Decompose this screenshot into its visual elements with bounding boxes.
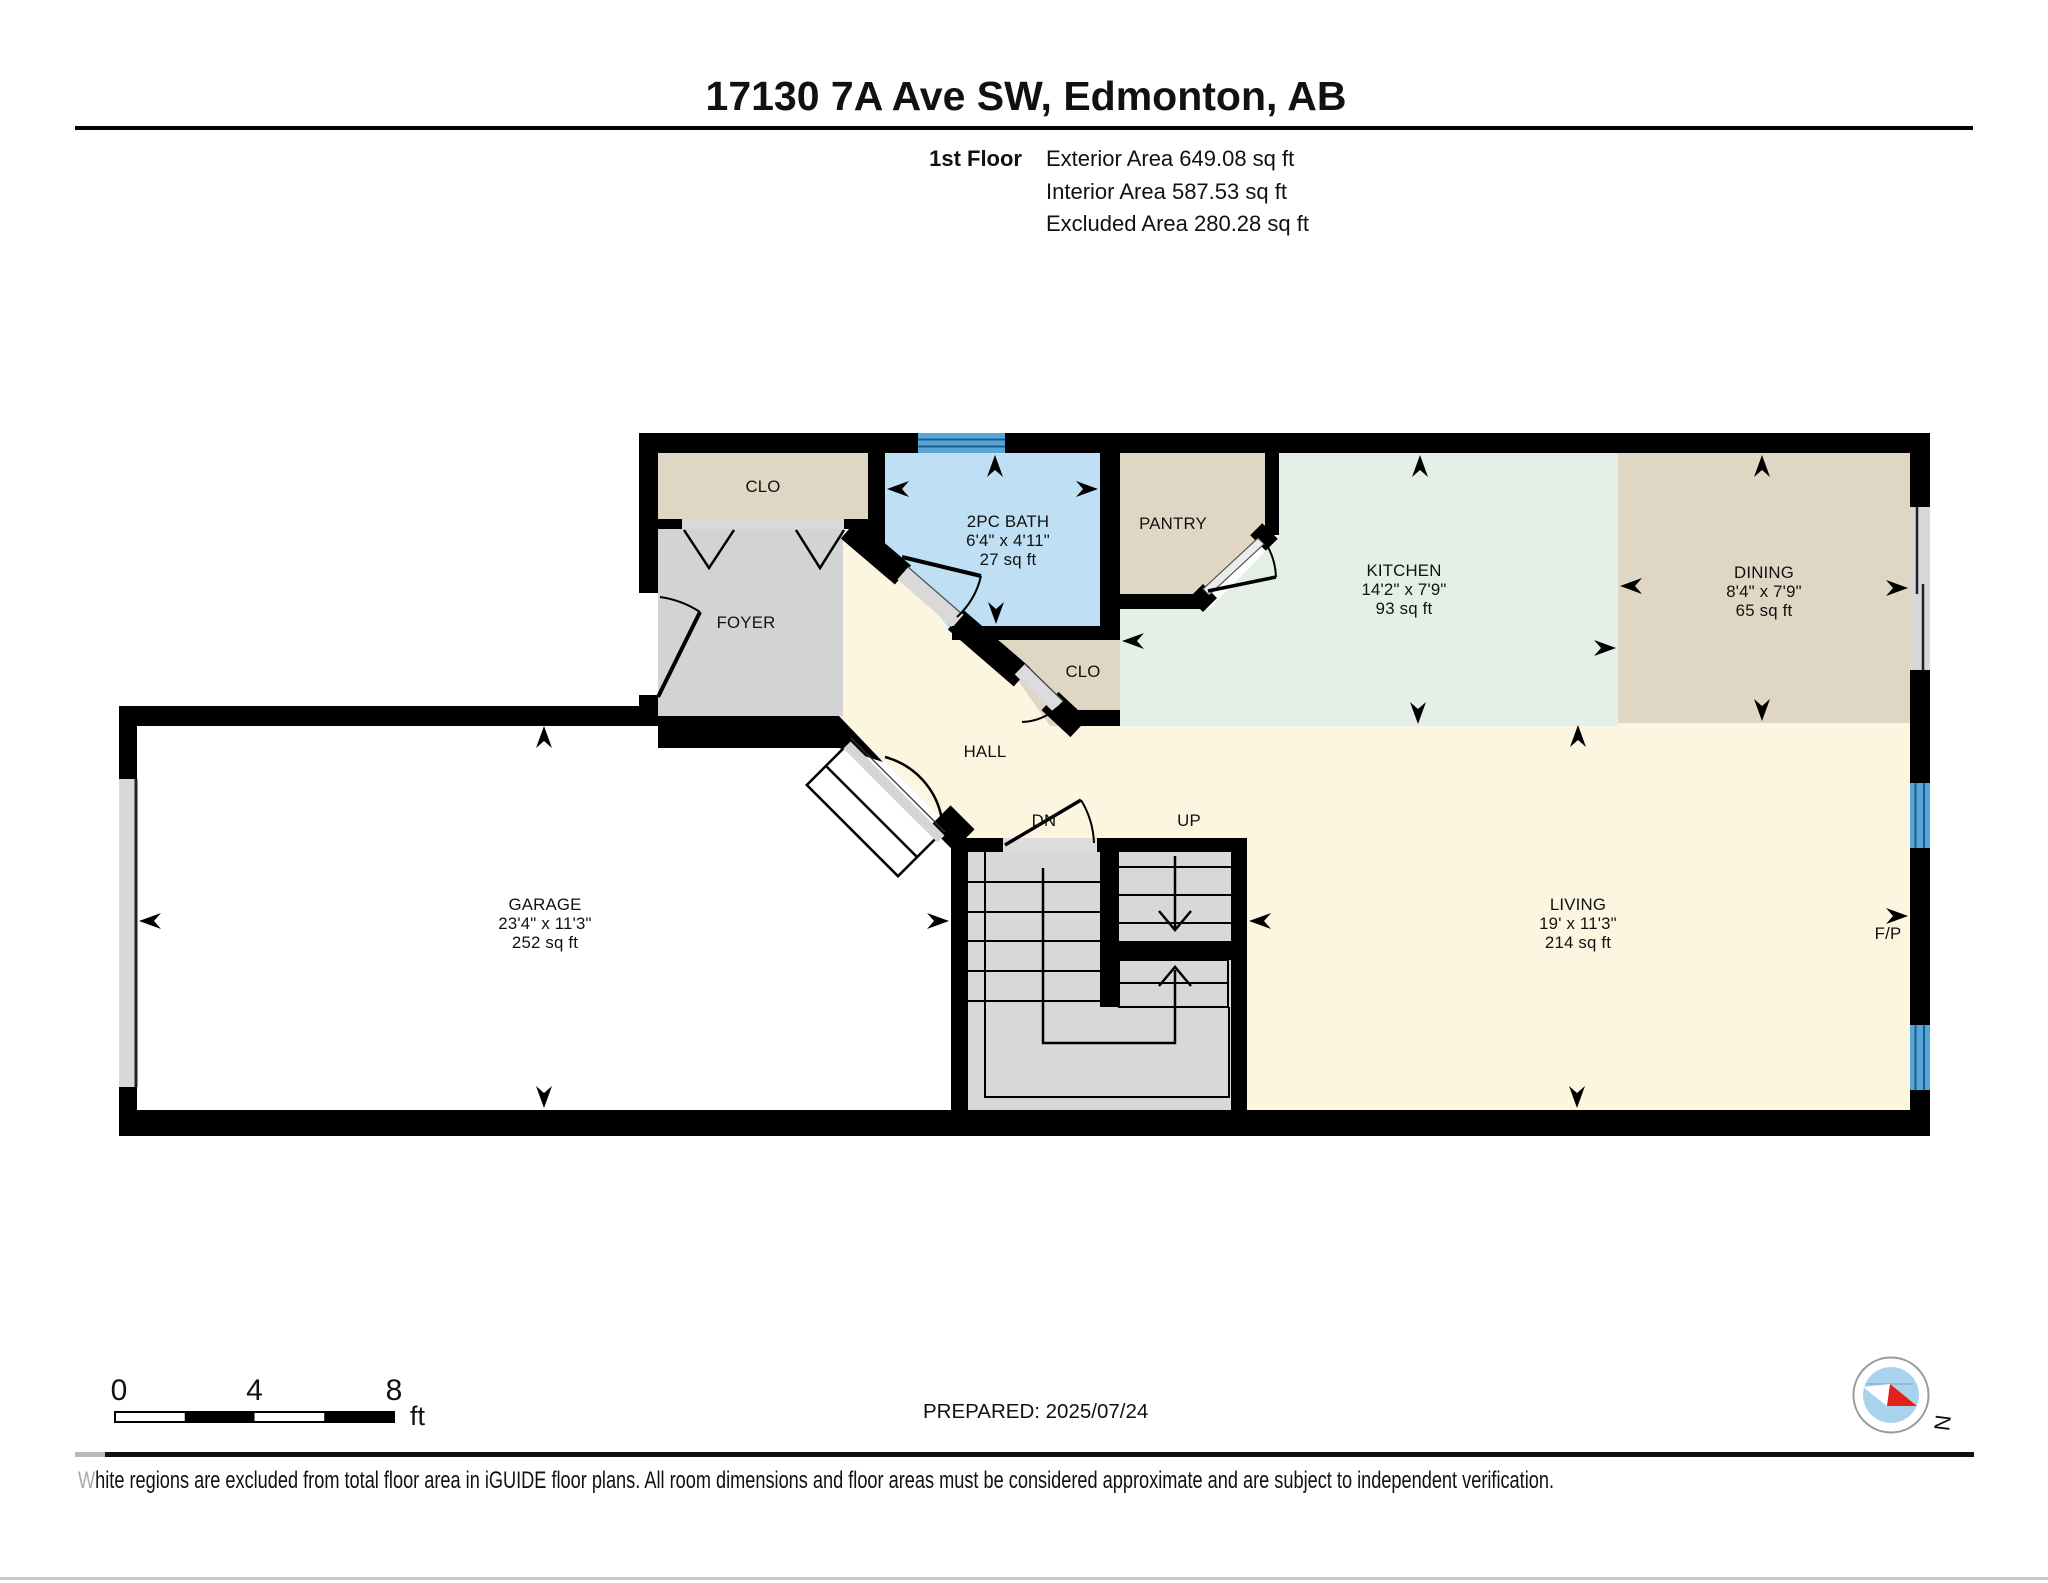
svg-text:White regions are excluded fro: White regions are excluded from total fl… (78, 1467, 1554, 1494)
svg-text:4: 4 (246, 1374, 263, 1407)
svg-text:PANTRY: PANTRY (1139, 514, 1207, 533)
svg-text:Excluded Area 280.28 sq ft: Excluded Area 280.28 sq ft (1046, 211, 1309, 236)
svg-text:CLO: CLO (1065, 662, 1100, 681)
svg-text:93 sq ft: 93 sq ft (1376, 599, 1433, 618)
svg-text:14'2" x 7'9": 14'2" x 7'9" (1361, 580, 1446, 599)
svg-text:HALL: HALL (964, 742, 1007, 761)
svg-text:23'4" x 11'3": 23'4" x 11'3" (498, 914, 591, 933)
svg-text:Exterior Area 649.08 sq ft: Exterior Area 649.08 sq ft (1046, 146, 1294, 171)
svg-text:ft: ft (410, 1401, 426, 1431)
svg-text:17130 7A Ave SW, Edmonton, AB: 17130 7A Ave SW, Edmonton, AB (706, 73, 1347, 119)
svg-text:FOYER: FOYER (717, 613, 776, 632)
svg-text:F/P: F/P (1875, 924, 1902, 943)
svg-text:27 sq ft: 27 sq ft (980, 550, 1037, 569)
svg-text:1st Floor: 1st Floor (929, 146, 1022, 171)
svg-text:LIVING: LIVING (1550, 895, 1606, 914)
svg-text:8'4" x 7'9": 8'4" x 7'9" (1726, 582, 1802, 601)
svg-text:UP: UP (1177, 811, 1201, 830)
svg-text:CLO: CLO (745, 477, 780, 496)
svg-text:252 sq ft: 252 sq ft (512, 933, 578, 952)
svg-text:Interior Area 587.53 sq ft: Interior Area 587.53 sq ft (1046, 179, 1287, 204)
svg-text:214 sq ft: 214 sq ft (1545, 933, 1611, 952)
svg-text:8: 8 (386, 1374, 403, 1407)
svg-text:N: N (1929, 1413, 1956, 1432)
svg-text:DINING: DINING (1734, 563, 1794, 582)
svg-text:GARAGE: GARAGE (508, 895, 581, 914)
svg-text:DN: DN (1032, 811, 1057, 830)
svg-text:19' x 11'3": 19' x 11'3" (1539, 914, 1617, 933)
svg-text:0: 0 (111, 1374, 128, 1407)
svg-text:65 sq ft: 65 sq ft (1736, 601, 1793, 620)
svg-text:PREPARED: 2025/07/24: PREPARED: 2025/07/24 (923, 1400, 1148, 1423)
svg-text:2PC BATH: 2PC BATH (967, 512, 1049, 531)
svg-text:KITCHEN: KITCHEN (1366, 561, 1441, 580)
svg-text:6'4" x 4'11": 6'4" x 4'11" (966, 531, 1050, 550)
